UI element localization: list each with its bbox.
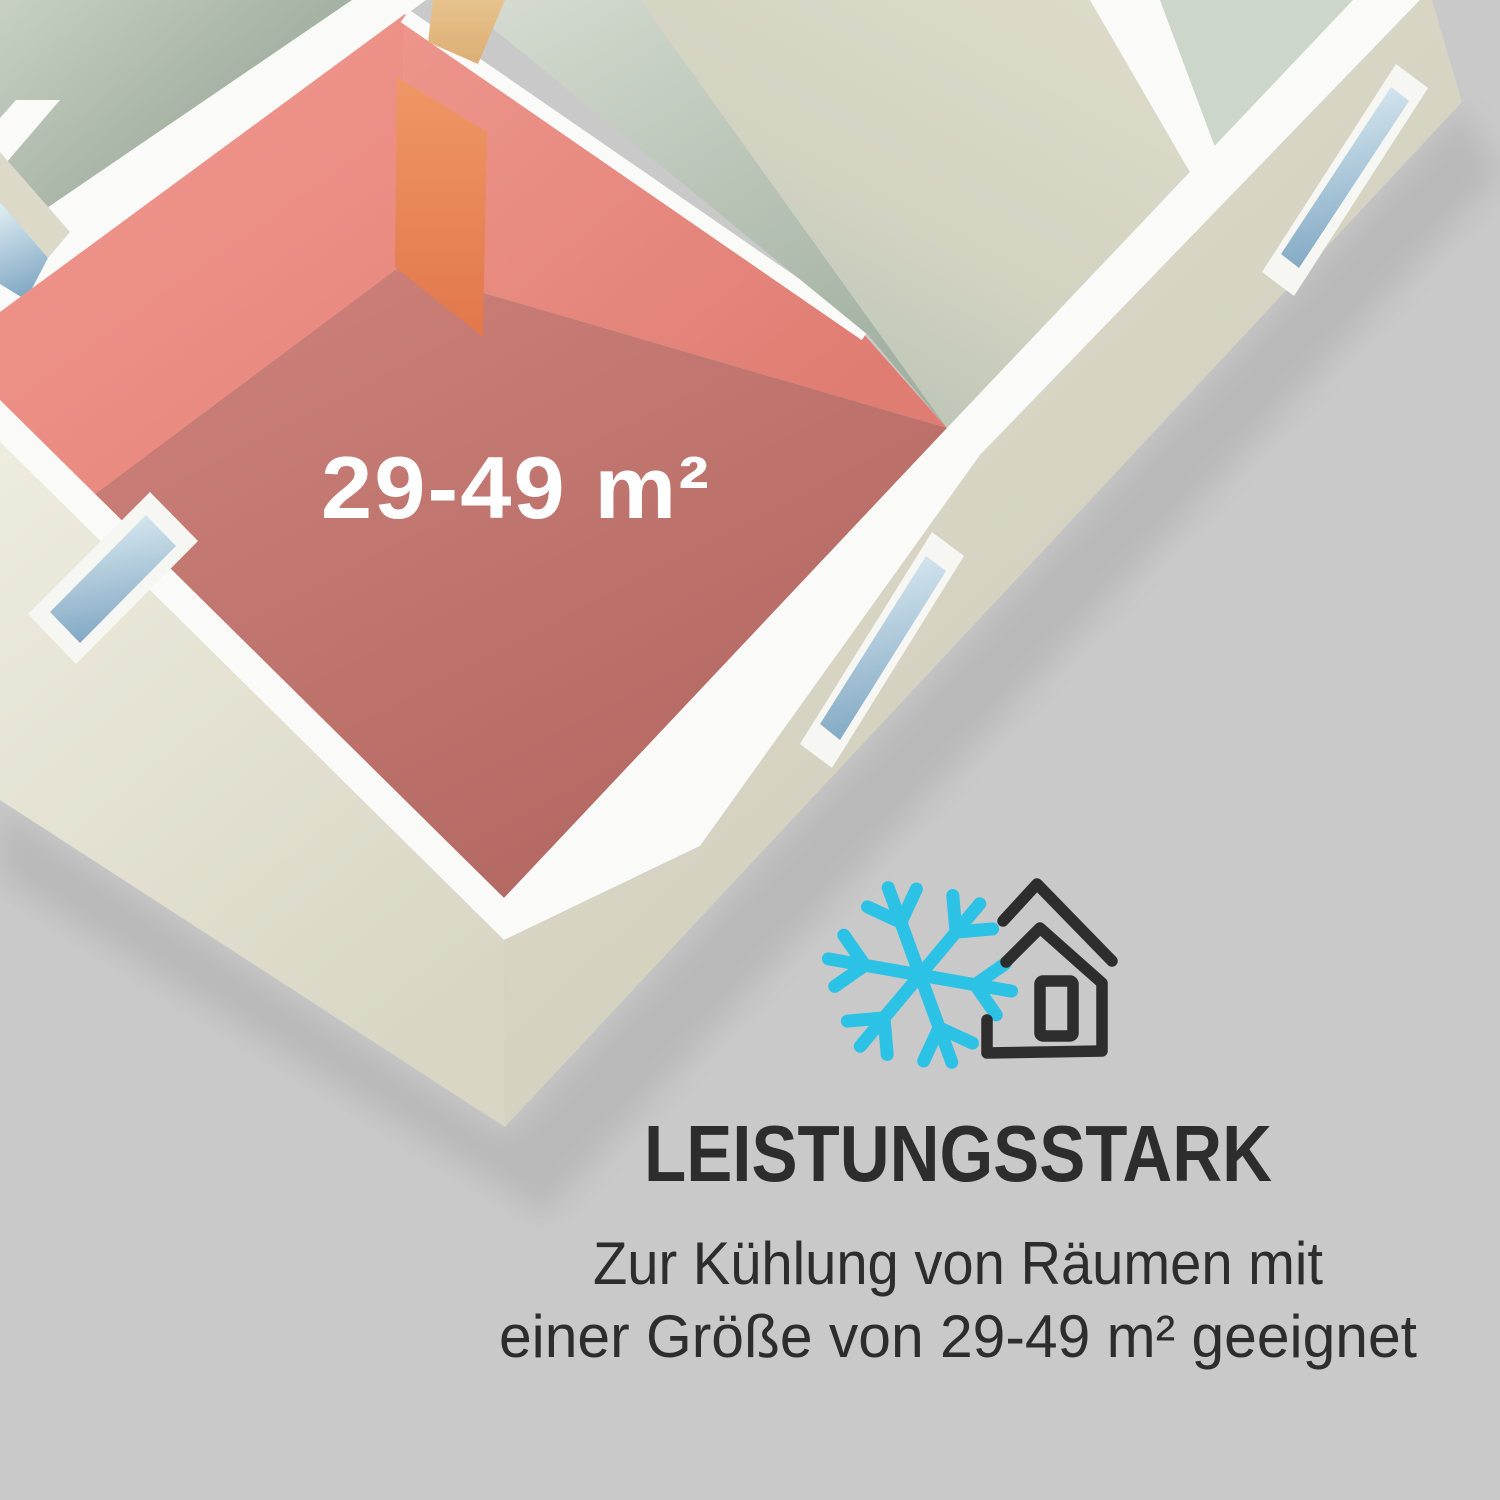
feature-heading: LEISTUNGSSTARK xyxy=(644,1109,1272,1198)
feature-subtitle-line-2: einer Größe von 29-49 m² geeignet xyxy=(499,1303,1417,1370)
product-graphic: 29-49 m² LEISTUNGSSTARK Zur Kühlung von … xyxy=(0,0,1500,1500)
feature-subtitle-line-1: Zur Kühlung von Räumen mit xyxy=(593,1230,1323,1297)
room-area-label: 29-49 m² xyxy=(321,438,711,537)
